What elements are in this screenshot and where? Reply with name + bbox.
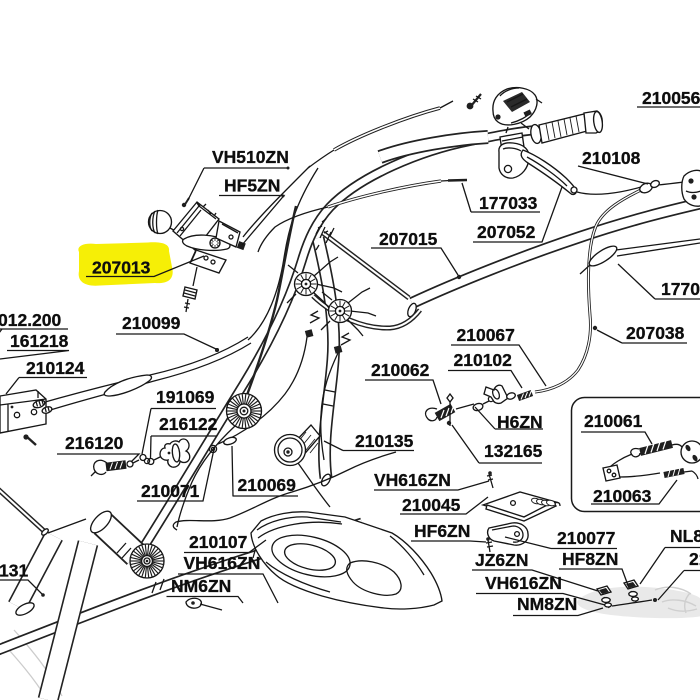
svg-text:210069: 210069 bbox=[238, 475, 297, 495]
svg-text:NM8ZN: NM8ZN bbox=[517, 594, 577, 614]
svg-text:HF6ZN: HF6ZN bbox=[414, 521, 470, 541]
svg-text:207015: 207015 bbox=[379, 229, 438, 249]
svg-text:210067: 210067 bbox=[457, 325, 515, 345]
svg-text:210135: 210135 bbox=[355, 431, 414, 451]
svg-text:210061: 210061 bbox=[584, 411, 643, 431]
svg-text:216120: 216120 bbox=[65, 433, 124, 453]
svg-text:210062: 210062 bbox=[371, 360, 430, 380]
svg-text:210: 210 bbox=[689, 549, 700, 569]
svg-text:210063: 210063 bbox=[593, 486, 652, 506]
svg-text:191069: 191069 bbox=[156, 387, 215, 407]
svg-text:210124: 210124 bbox=[26, 358, 85, 378]
svg-text:HF5ZN: HF5ZN bbox=[224, 176, 280, 196]
svg-text:131: 131 bbox=[0, 561, 28, 581]
svg-text:177034: 177034 bbox=[661, 279, 700, 299]
svg-text:JZ6ZN: JZ6ZN bbox=[475, 550, 528, 570]
svg-text:NL8ZN: NL8ZN bbox=[670, 526, 700, 546]
svg-text:VH616ZN: VH616ZN bbox=[485, 573, 562, 593]
svg-text:207013: 207013 bbox=[92, 258, 151, 278]
svg-text:HF8ZN: HF8ZN bbox=[562, 549, 618, 569]
svg-text:210099: 210099 bbox=[122, 313, 181, 333]
svg-text:210045: 210045 bbox=[402, 495, 461, 515]
svg-text:161218: 161218 bbox=[10, 331, 69, 351]
svg-text:VH616ZN: VH616ZN bbox=[374, 470, 451, 490]
svg-text:012.200: 012.200 bbox=[0, 310, 62, 330]
svg-text:207052: 207052 bbox=[477, 222, 536, 242]
svg-text:207038: 207038 bbox=[626, 323, 685, 343]
svg-text:132165: 132165 bbox=[484, 441, 543, 461]
svg-text:210107: 210107 bbox=[189, 532, 247, 552]
svg-text:210071: 210071 bbox=[141, 481, 200, 501]
svg-text:210102: 210102 bbox=[454, 350, 513, 370]
svg-text:VH616ZN: VH616ZN bbox=[184, 553, 261, 573]
svg-text:H6ZN: H6ZN bbox=[497, 412, 543, 432]
svg-text:177033: 177033 bbox=[479, 193, 538, 213]
svg-text:216122: 216122 bbox=[159, 414, 218, 434]
svg-text:210056: 210056 bbox=[642, 88, 700, 108]
svg-text:210077: 210077 bbox=[557, 528, 615, 548]
svg-text:NM6ZN: NM6ZN bbox=[171, 576, 231, 596]
svg-text:210108: 210108 bbox=[582, 148, 641, 168]
svg-text:VH510ZN: VH510ZN bbox=[212, 147, 289, 167]
